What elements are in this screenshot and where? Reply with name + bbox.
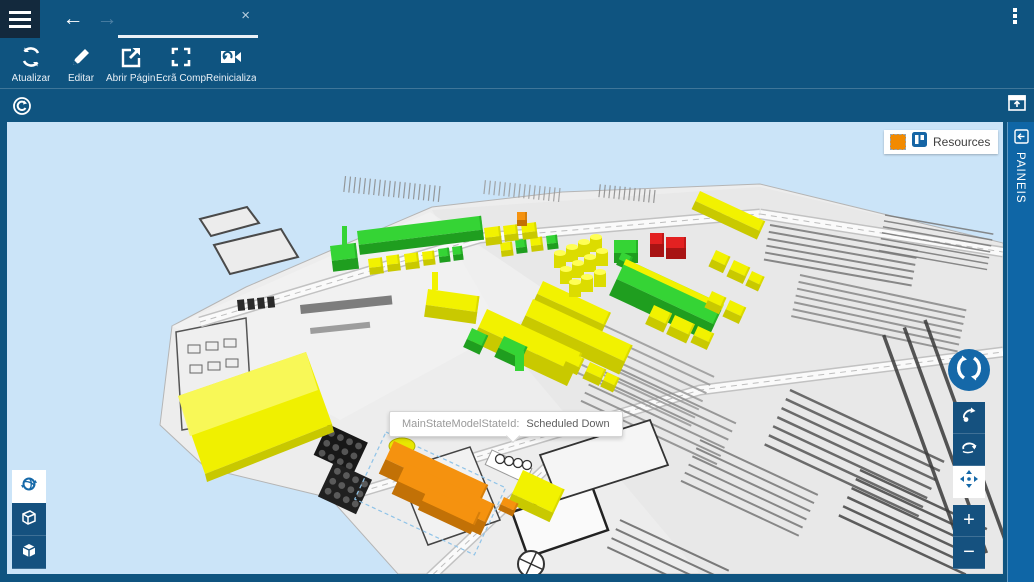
zoom-out-button[interactable]: − xyxy=(953,537,985,569)
cube-solid-button[interactable] xyxy=(12,536,46,569)
back-button[interactable]: ← xyxy=(56,0,90,38)
orbit-horizontal-button[interactable] xyxy=(953,434,985,466)
resource-block[interactable] xyxy=(404,252,420,270)
orbit-tilt-icon xyxy=(960,406,978,429)
open-external-icon xyxy=(119,45,143,69)
tooltip-label: MainStateModelStateId: xyxy=(402,418,519,430)
rotate-view-button[interactable] xyxy=(948,349,990,391)
auto-refresh-icon[interactable] xyxy=(12,96,32,116)
fullscreen-icon xyxy=(169,45,193,69)
resource-block[interactable] xyxy=(386,254,401,271)
legend[interactable]: Resources xyxy=(884,130,998,154)
reset-view-button[interactable]: Reinicializar... xyxy=(206,38,256,84)
resource-block[interactable] xyxy=(650,233,664,257)
globe-orbit-icon xyxy=(19,474,39,499)
resource-block[interactable] xyxy=(546,235,559,250)
pan-button[interactable] xyxy=(953,466,985,498)
resource-block[interactable] xyxy=(515,239,528,254)
state-tooltip: MainStateModelStateId: Scheduled Down xyxy=(389,411,623,437)
orbit-tilt-button[interactable] xyxy=(953,402,985,434)
pencil-icon xyxy=(69,45,93,69)
secondary-bar xyxy=(0,90,1034,122)
collapse-panel-icon[interactable] xyxy=(1014,129,1029,144)
resource-block[interactable] xyxy=(484,226,502,246)
tab-close-icon[interactable]: × xyxy=(241,8,250,23)
resource-block[interactable] xyxy=(452,246,464,261)
edit-button[interactable]: Editar xyxy=(56,38,106,84)
viewport-3d[interactable]: Resources MainStateModelStateId: Schedul… xyxy=(7,122,1003,574)
orbit-horizontal-icon xyxy=(960,438,978,461)
cube-outline-icon xyxy=(19,507,39,532)
top-bar: ← → × xyxy=(0,0,1034,38)
resource-block[interactable] xyxy=(666,237,686,259)
scene-3d-view[interactable] xyxy=(7,122,1003,574)
navigation-stack xyxy=(953,402,985,498)
panel-restore-icon[interactable] xyxy=(1008,95,1026,111)
legend-panel-icon xyxy=(912,132,927,152)
panels-strip-label: PAINEIS xyxy=(1014,152,1026,204)
toolbar: Atualizar Editar Abrir Págin... xyxy=(0,38,1034,89)
reset-camera-icon xyxy=(219,45,243,69)
resource-block[interactable] xyxy=(503,224,519,242)
resource-block[interactable] xyxy=(515,351,524,371)
cube-solid-icon xyxy=(19,540,39,565)
orbit-mode-button[interactable] xyxy=(12,470,46,503)
hamburger-menu-button[interactable] xyxy=(0,0,40,38)
resource-block[interactable] xyxy=(530,237,544,252)
view-mode-buttons xyxy=(12,470,46,569)
legend-swatch xyxy=(890,134,906,150)
resource-block[interactable] xyxy=(517,212,527,226)
refresh-button[interactable]: Atualizar xyxy=(6,38,56,84)
cube-wireframe-button[interactable] xyxy=(12,503,46,536)
fullscreen-button[interactable]: Ecrã Compl... xyxy=(156,38,206,84)
zoom-controls: + − xyxy=(953,505,985,569)
pan-icon xyxy=(959,469,979,494)
panels-side-strip[interactable]: PAINEIS xyxy=(1007,122,1034,582)
zoom-in-button[interactable]: + xyxy=(953,505,985,537)
resource-block[interactable] xyxy=(368,257,384,275)
legend-label: Resources xyxy=(933,135,990,149)
tab-active[interactable]: × xyxy=(118,0,258,38)
tooltip-value: Scheduled Down xyxy=(526,418,609,430)
rotate-arrows-icon xyxy=(954,353,984,388)
open-page-button[interactable]: Abrir Págin... xyxy=(106,38,156,84)
kebab-menu-icon[interactable] xyxy=(1008,8,1022,30)
resource-block[interactable] xyxy=(422,251,436,266)
resource-block[interactable] xyxy=(438,248,451,263)
app-window: ← → × Atualizar Editar xyxy=(0,0,1034,582)
resource-block[interactable] xyxy=(432,272,438,290)
resource-block[interactable] xyxy=(342,226,347,248)
refresh-icon xyxy=(19,45,43,69)
